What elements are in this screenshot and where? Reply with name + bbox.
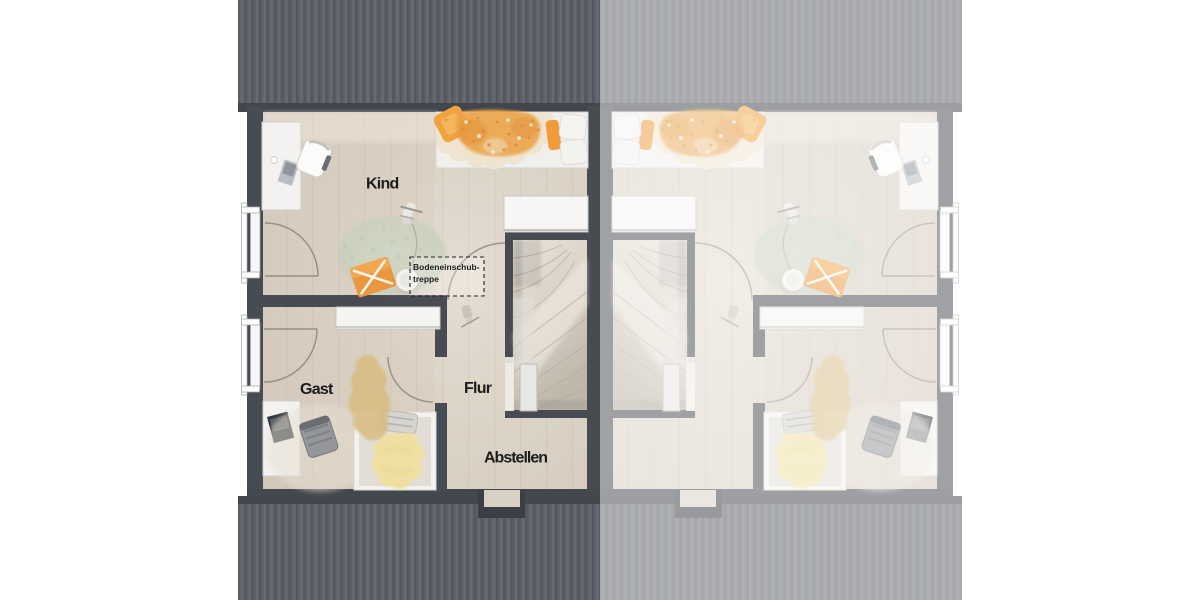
svg-text:Kind: Kind	[366, 176, 399, 193]
svg-text:Bodeneinschub-: Bodeneinschub-	[413, 262, 480, 272]
svg-text:Gast: Gast	[300, 381, 334, 398]
svg-text:treppe: treppe	[413, 274, 439, 284]
svg-text:Abstellen: Abstellen	[484, 450, 547, 467]
svg-text:Flur: Flur	[464, 380, 492, 397]
